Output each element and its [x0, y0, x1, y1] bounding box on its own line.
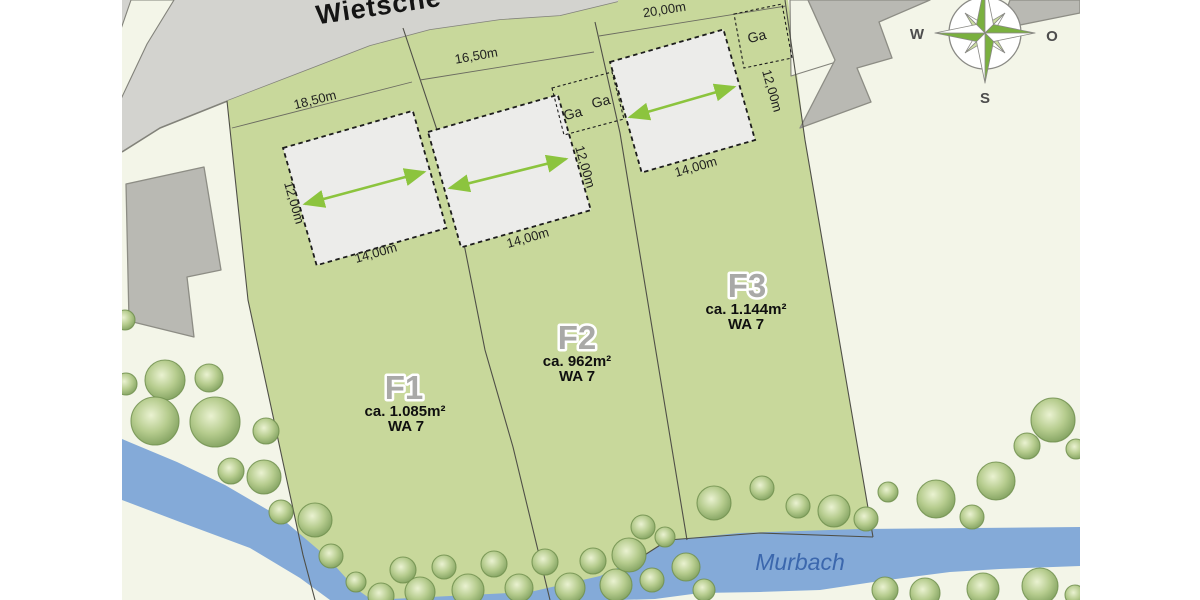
tree: [346, 572, 366, 592]
svg-text:WA 7: WA 7: [388, 418, 424, 435]
compass-east-label: O: [1046, 28, 1058, 45]
tree: [878, 482, 898, 502]
tree: [269, 500, 293, 524]
tree: [1031, 398, 1075, 442]
svg-text:F3: F3: [728, 267, 767, 304]
tree: [452, 574, 484, 600]
tree: [818, 495, 850, 527]
tree: [967, 573, 999, 600]
tree: [481, 551, 507, 577]
tree: [145, 360, 185, 400]
tree: [1065, 585, 1085, 600]
tree: [655, 527, 675, 547]
tree: [1014, 433, 1040, 459]
tree: [786, 494, 810, 518]
tree: [697, 486, 731, 520]
compass-west-label: W: [910, 26, 925, 43]
tree: [432, 555, 456, 579]
tree: [253, 418, 279, 444]
stream-label: Murbach: [755, 549, 844, 575]
site-plan: Wietsche 18,50m 16,50m 20,00m 12,00m 12,…: [0, 0, 1200, 600]
tree: [115, 310, 135, 330]
tree: [960, 505, 984, 529]
svg-text:F2: F2: [558, 319, 597, 356]
tree: [693, 579, 715, 600]
svg-text:WA 7: WA 7: [728, 316, 764, 333]
tree: [532, 549, 558, 575]
tree: [750, 476, 774, 500]
tree: [631, 515, 655, 539]
tree: [872, 577, 898, 600]
tree: [298, 503, 332, 537]
svg-text:WA 7: WA 7: [559, 368, 595, 385]
tree: [247, 460, 281, 494]
svg-text:F1: F1: [385, 369, 424, 406]
tree: [1066, 439, 1086, 459]
tree: [854, 507, 878, 531]
tree: [640, 568, 664, 592]
tree: [917, 480, 955, 518]
tree: [672, 553, 700, 581]
tree: [115, 373, 137, 395]
tree: [190, 397, 240, 447]
site-plan-canvas: Wietsche 18,50m 16,50m 20,00m 12,00m 12,…: [0, 0, 1200, 600]
tree: [580, 548, 606, 574]
compass-south-label: S: [980, 90, 990, 107]
tree: [1022, 568, 1058, 600]
tree: [612, 538, 646, 572]
tree: [195, 364, 223, 392]
tree: [131, 397, 179, 445]
tree: [505, 574, 533, 600]
tree: [600, 569, 632, 600]
tree: [218, 458, 244, 484]
tree: [319, 544, 343, 568]
tree: [977, 462, 1015, 500]
tree: [555, 573, 585, 600]
